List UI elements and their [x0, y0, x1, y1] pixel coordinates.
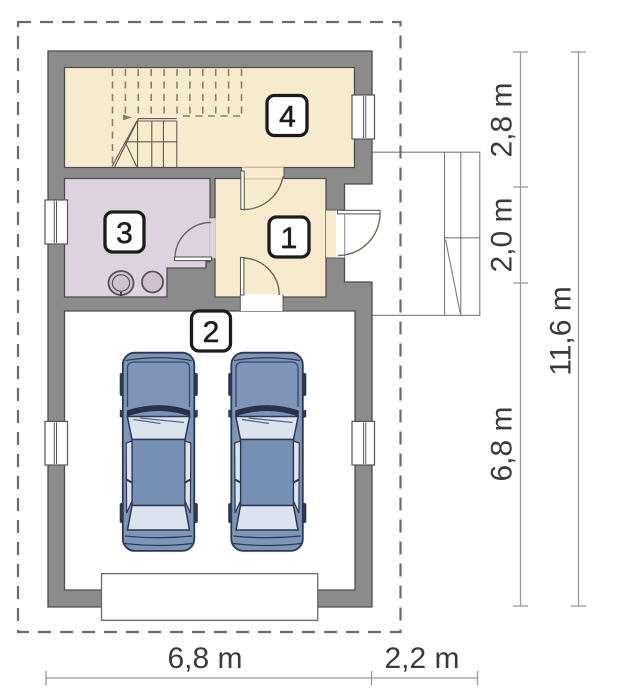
svg-text:6,8 m: 6,8 m: [486, 406, 519, 481]
svg-text:2,0 m: 2,0 m: [486, 197, 519, 272]
svg-text:1: 1: [281, 222, 298, 255]
svg-text:3: 3: [116, 217, 133, 250]
svg-text:4: 4: [279, 101, 296, 134]
svg-text:2,8 m: 2,8 m: [486, 82, 519, 157]
svg-text:6,8 m: 6,8 m: [167, 642, 242, 675]
svg-text:11,6 m: 11,6 m: [545, 286, 578, 376]
svg-text:2,2 m: 2,2 m: [384, 642, 459, 675]
svg-text:2: 2: [203, 316, 220, 349]
